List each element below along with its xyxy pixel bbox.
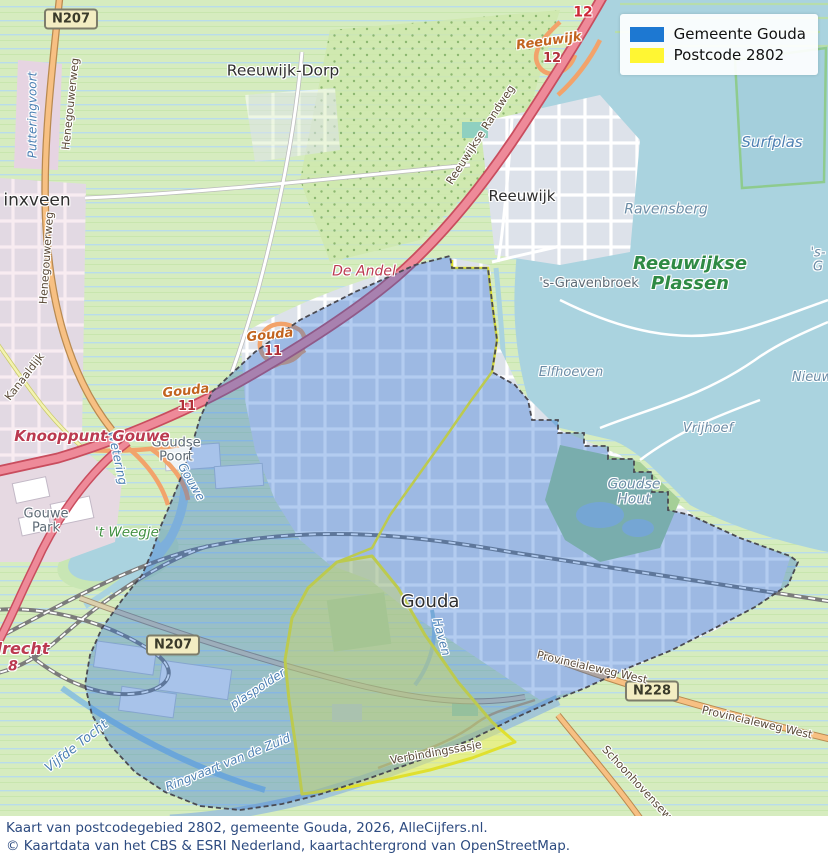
legend-item-gemeente: Gemeente Gouda [630,25,806,43]
screenshot-root: N207 N207 N228 Reeuwijk-Dorp inxveen Ree… [0,0,828,861]
legend-label-postcode: Postcode 2802 [674,46,785,64]
map-legend: Gemeente Gouda Postcode 2802 [620,14,818,75]
road-sign-n207-bottom: N207 [146,635,200,656]
map-caption: Kaart van postcodegebied 2802, gemeente … [0,816,828,861]
gemeente-color-swatch [630,27,664,42]
road-sign-n207-top: N207 [44,9,98,30]
caption-line-1: Kaart van postcodegebied 2802, gemeente … [0,816,828,837]
legend-label-gemeente: Gemeente Gouda [674,25,806,43]
road-sign-n228: N228 [625,681,679,702]
legend-item-postcode: Postcode 2802 [630,46,806,64]
map-graphic [0,0,828,816]
map-viewport[interactable]: N207 N207 N228 Reeuwijk-Dorp inxveen Ree… [0,0,828,816]
postcode-color-swatch [630,48,664,63]
caption-line-2: © Kaartdata van het CBS & ESRI Nederland… [0,837,828,855]
